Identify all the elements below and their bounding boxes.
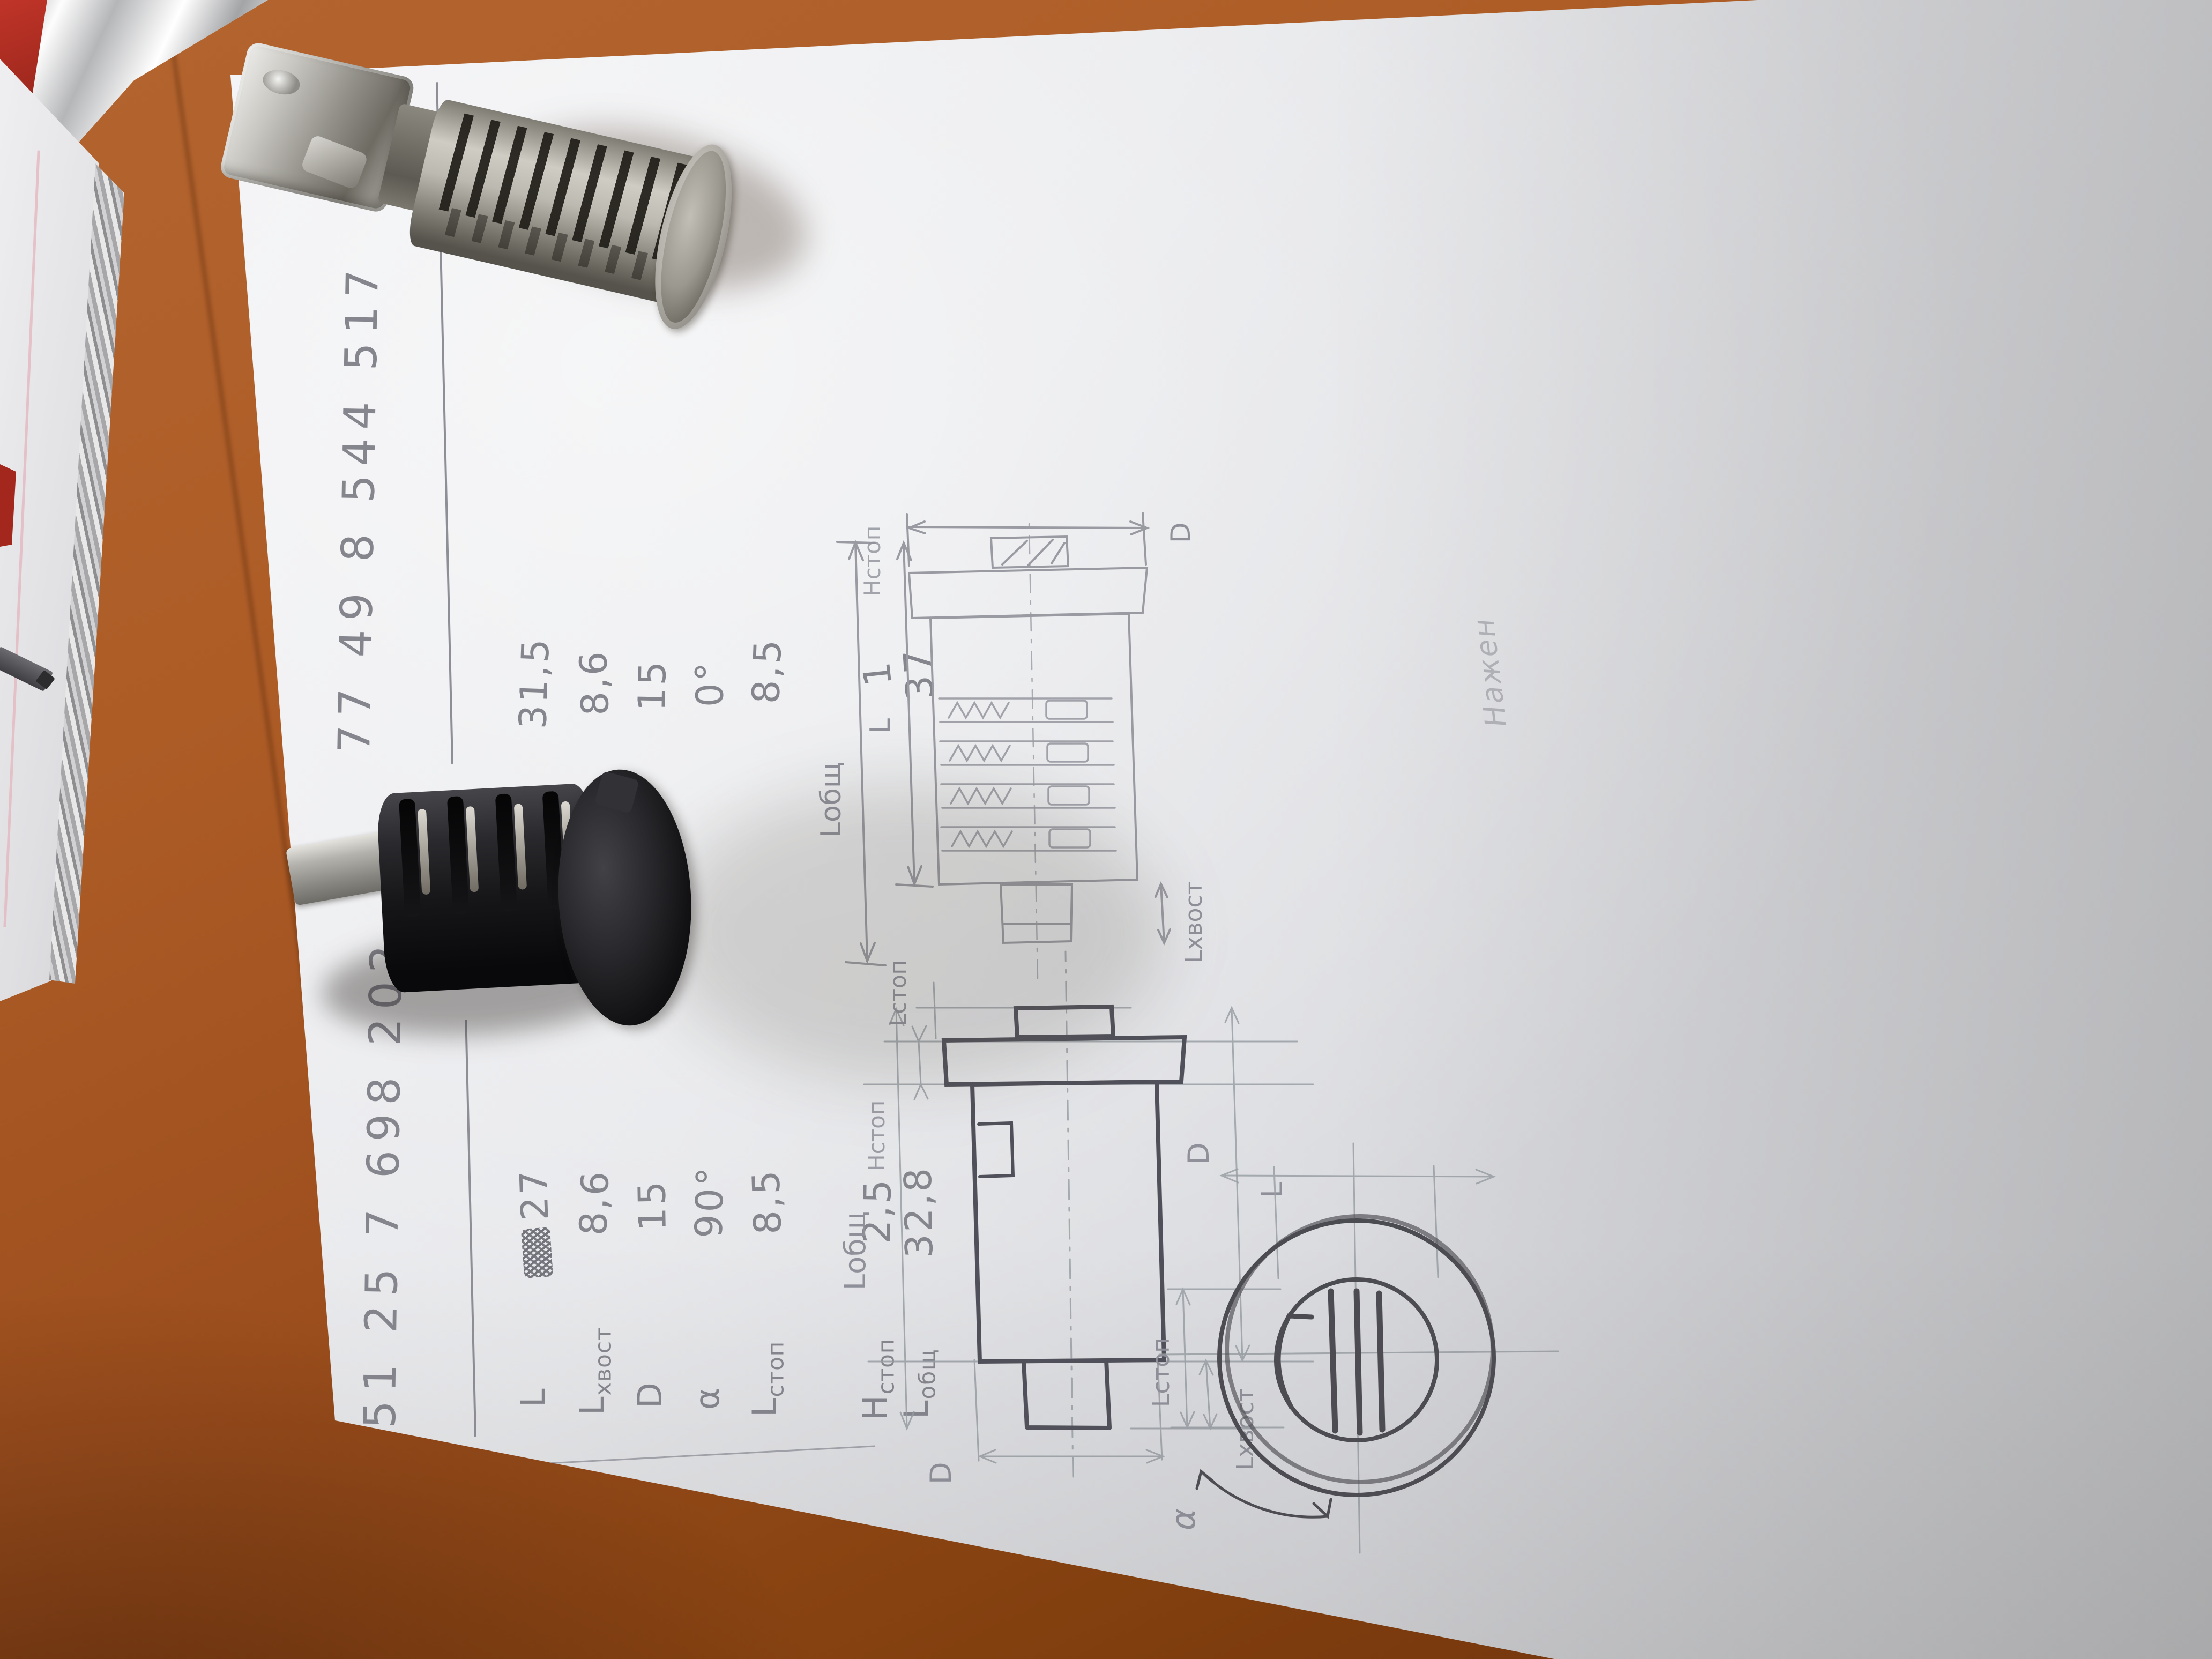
col1-value-Lstop: 8,5 [744,1167,790,1235]
svg-text:Нстоп: Нстоп [859,526,885,597]
svg-text:D: D [924,1462,958,1484]
column2-header: 77 49 8 544 517 [329,261,389,754]
scratched-out-value [521,1227,553,1278]
col2-value-alpha: 0° [687,659,732,708]
col2-value-L: 31,5 [511,636,558,730]
row-label-Lhvost: Lхвост [572,1327,616,1415]
col1-value-Lhvost: 8,6 [571,1169,617,1236]
col1-value-D: 15 [630,1179,675,1231]
svg-text:D: D [1165,522,1196,543]
svg-text:D: D [1182,1142,1216,1165]
metal-bevel-mark [300,134,369,190]
svg-text:α: α [1164,1508,1203,1530]
row-label-Lstop: Lстоп [745,1341,788,1417]
svg-text:Lхвост: Lхвост [1232,1388,1259,1470]
col1-value-L: 27 [511,1168,557,1222]
metal-screw-mark [260,66,302,98]
col2-value-Hstop: 1 [854,658,901,688]
svg-text:Lхвост: Lхвост [1180,881,1208,963]
col2-value-Lhvost: 8,6 [571,649,617,716]
photo-scene: 51 25 7 698 202 77 49 8 544 517 L Lхвост… [0,0,2212,1659]
col2-value-Lstop: 8,5 [744,637,790,704]
row-label-L: L [513,1387,557,1407]
shadow-black-cylinder-soft [659,783,1163,1083]
svg-text:Lобщ: Lобщ [838,1211,872,1290]
row-label-alpha: α [688,1387,731,1410]
svg-text:L: L [1255,1182,1289,1198]
row-label-Lobsch: Lобщ [897,1349,940,1419]
faint-pencil-note: Нажен [1466,615,1514,729]
col2-value-D: 15 [630,659,675,711]
col1-value-Hstop: 2,5 [855,1177,900,1244]
svg-text:L: L [865,718,897,734]
col2-value-Lobsch: 37 [895,646,943,701]
black-lock-cylinder [285,766,697,1043]
svg-text:Lстоп: Lстоп [1150,1337,1175,1407]
col1-value-alpha: 90° [687,1165,733,1239]
row-label-D: D [630,1381,674,1408]
sketch-front-view: α D Lстоп [1150,1128,1568,1568]
col1-value-Lobsch: 32,8 [896,1165,942,1258]
svg-text:Нстоп: Нстоп [863,1100,890,1171]
row-label-Hstop: Нстоп [855,1338,899,1420]
column1-underline [465,1020,476,1437]
